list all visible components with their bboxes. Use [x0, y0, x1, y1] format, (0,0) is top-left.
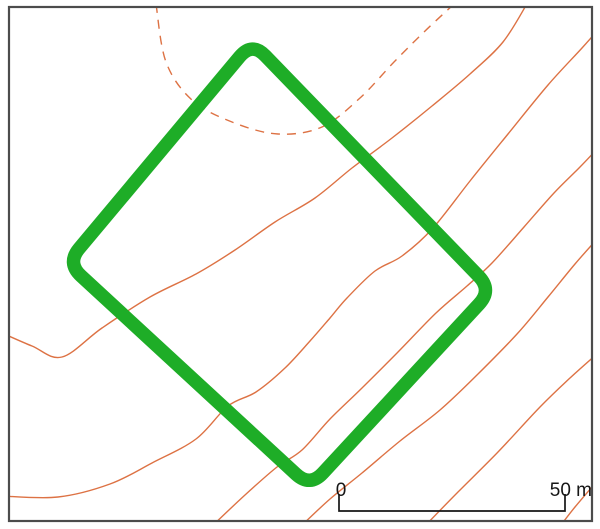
excavation-square-outline [74, 49, 486, 480]
contour-right-3 [422, 353, 598, 529]
dashed-upper-contour [156, 4, 454, 134]
map-layers [2, 2, 598, 529]
scale-zero-label: 0 [336, 480, 347, 501]
figure-canvas: 0 50 m [0, 0, 600, 529]
site-map: 0 50 m [0, 0, 600, 529]
scale-bar [339, 494, 565, 511]
scale-length-label: 50 m [550, 480, 592, 501]
